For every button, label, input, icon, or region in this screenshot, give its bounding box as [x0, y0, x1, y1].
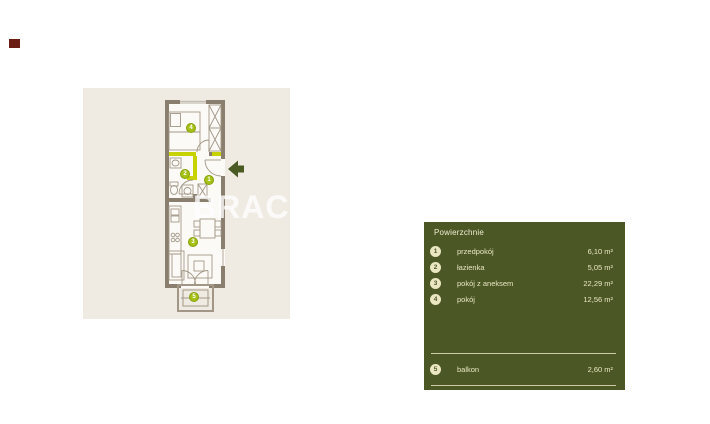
- room-label: balkon: [457, 365, 588, 374]
- divider-line: [431, 353, 616, 354]
- row-number-badge: 4: [430, 294, 441, 305]
- room-marker-5: 5: [189, 292, 199, 302]
- legend-panel: Powierzchnie 1 przedpokój 6,10 m² 2 łazi…: [424, 222, 625, 390]
- divider-line: [431, 385, 616, 386]
- legend-title: Powierzchnie: [434, 228, 484, 237]
- room-area: 2,60 m²: [588, 365, 613, 374]
- room-label: przedpokój: [457, 247, 588, 256]
- room-marker-3: 3: [188, 237, 198, 247]
- floorplan-panel: BRACIA: [83, 88, 290, 319]
- room-marker-4: 4: [186, 123, 196, 133]
- room-label: łazienka: [457, 263, 588, 272]
- row-number-badge: 1: [430, 246, 441, 257]
- legend-row-lazienka: 2 łazienka 5,05 m²: [430, 259, 613, 275]
- row-number-badge: 2: [430, 262, 441, 273]
- entrance-arrow-icon: [228, 161, 244, 178]
- legend-row-przedpokoj: 1 przedpokój 6,10 m²: [430, 243, 613, 259]
- watermark-text: BRACIA: [193, 191, 290, 223]
- room-label: pokój z aneksem: [457, 279, 583, 288]
- legend-row-pokoj: 4 pokój 12,56 m²: [430, 291, 613, 307]
- legend-row-pokoj-z-aneksem: 3 pokój z aneksem 22,29 m²: [430, 275, 613, 291]
- room-marker-1: 1: [204, 175, 214, 185]
- row-number-badge: 3: [430, 278, 441, 289]
- room-area: 6,10 m²: [588, 247, 613, 256]
- red-marker: [9, 39, 20, 48]
- room-area: 22,29 m²: [583, 279, 613, 288]
- room-area: 5,05 m²: [588, 263, 613, 272]
- room-label: pokój: [457, 295, 583, 304]
- room-marker-2: 2: [180, 169, 190, 179]
- row-number-badge: 5: [430, 364, 441, 375]
- room-area: 12,56 m²: [583, 295, 613, 304]
- legend-row-balkon: 5 balkon 2,60 m²: [430, 361, 613, 377]
